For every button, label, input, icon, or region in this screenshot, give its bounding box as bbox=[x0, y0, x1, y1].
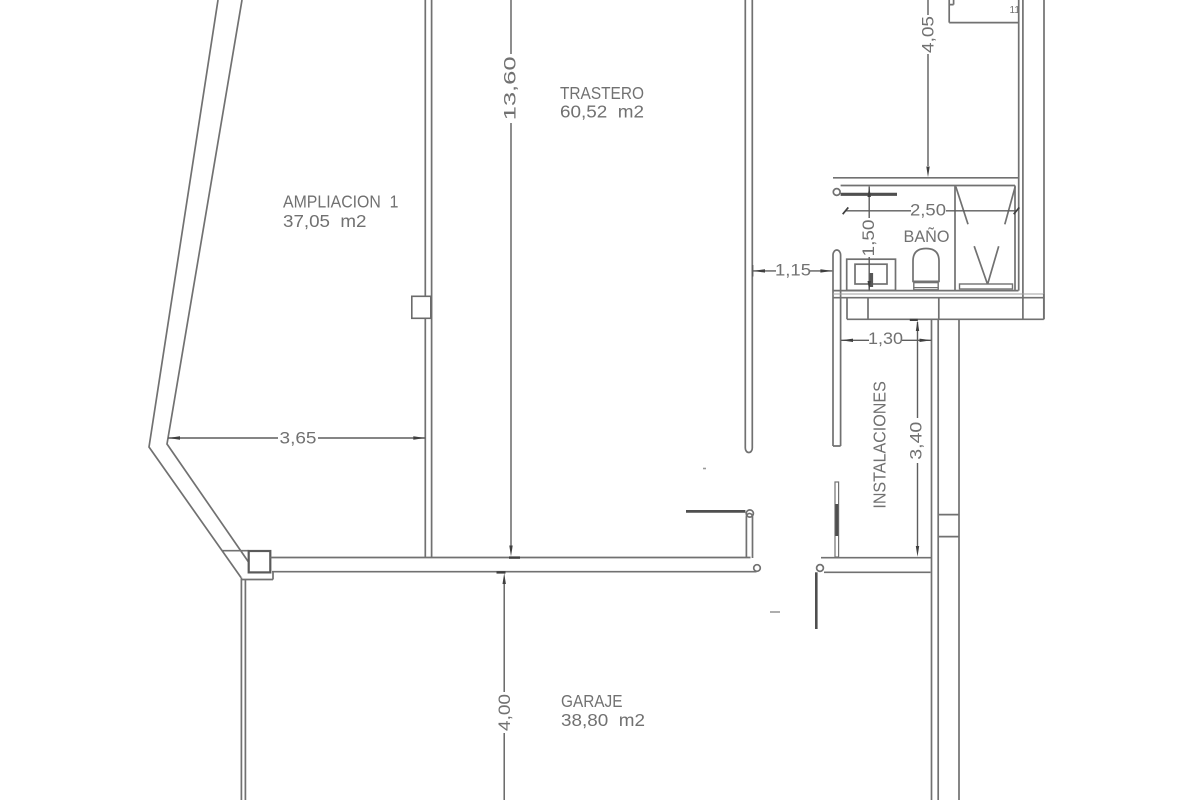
svg-text:38,80 m2: 38,80 m2 bbox=[561, 710, 645, 730]
svg-text:11: 11 bbox=[1010, 5, 1021, 16]
svg-text:3,40: 3,40 bbox=[908, 422, 926, 460]
svg-text:60,52 m2: 60,52 m2 bbox=[560, 101, 644, 121]
svg-text:AMPLIACION 1: AMPLIACION 1 bbox=[283, 192, 399, 212]
svg-text:3,65: 3,65 bbox=[280, 430, 317, 448]
svg-text:4,05: 4,05 bbox=[920, 16, 938, 53]
svg-text:13,60: 13,60 bbox=[502, 56, 520, 120]
svg-text:2,50: 2,50 bbox=[910, 202, 946, 220]
svg-text:INSTALACIONES: INSTALACIONES bbox=[870, 381, 890, 509]
svg-text:37,05 m2: 37,05 m2 bbox=[283, 211, 367, 231]
svg-text:GARAJE: GARAJE bbox=[561, 691, 623, 711]
svg-text:1,50: 1,50 bbox=[860, 220, 878, 257]
svg-text:1,30: 1,30 bbox=[868, 330, 903, 348]
svg-text:4,00: 4,00 bbox=[496, 694, 514, 731]
svg-text:BAÑO: BAÑO bbox=[904, 226, 950, 246]
svg-text:1,15: 1,15 bbox=[775, 262, 811, 280]
svg-text:TRASTERO: TRASTERO bbox=[560, 83, 644, 103]
